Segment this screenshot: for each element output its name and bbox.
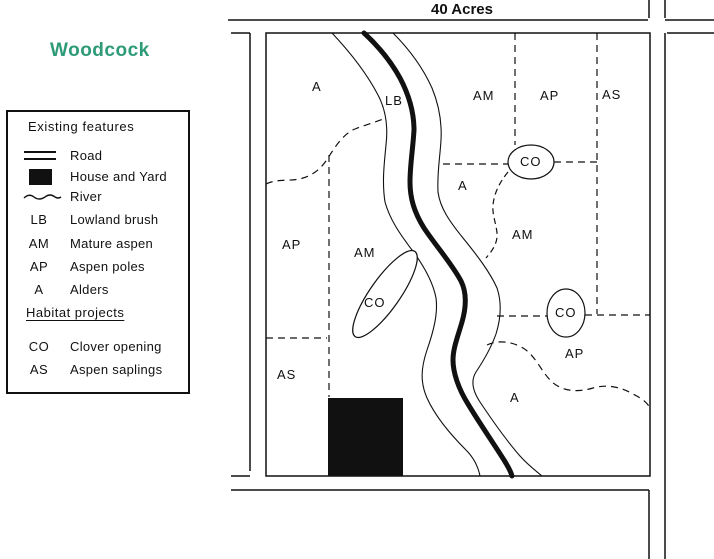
woodcock-habitat-map: Woodcock 40 Acres Existing features Road… bbox=[0, 0, 714, 559]
map-label-aspen-poles-top: AP bbox=[540, 88, 559, 103]
map-label-aspen-poles-right: AP bbox=[565, 346, 584, 361]
map-label-alders-mid: A bbox=[458, 178, 468, 193]
bottom-road-lines bbox=[231, 476, 649, 490]
map-label-alders-topleft: A bbox=[312, 79, 322, 94]
house-and-yard bbox=[328, 398, 403, 476]
map-label-clover-upper: CO bbox=[520, 154, 542, 169]
map-label-lowland-brush: LB bbox=[385, 93, 403, 108]
right-road-lines bbox=[649, 0, 665, 559]
map-label-mature-aspen-left: AM bbox=[354, 245, 376, 260]
map-label-alders-bottom: A bbox=[510, 390, 520, 405]
map-drawing bbox=[0, 0, 714, 559]
boundary-a-ap-dashed bbox=[266, 118, 386, 184]
map-label-mature-aspen-right: AM bbox=[512, 227, 534, 242]
map-label-aspen-poles-left: AP bbox=[282, 237, 301, 252]
map-label-mature-aspen-top: AM bbox=[473, 88, 495, 103]
parcel-border bbox=[266, 33, 650, 476]
map-label-aspen-saplings-left: AS bbox=[277, 367, 296, 382]
map-label-clover-tilted: CO bbox=[364, 295, 386, 310]
map-label-clover-lower: CO bbox=[555, 305, 577, 320]
boundary-a-am-squiggle-dashed bbox=[486, 172, 508, 258]
map-label-aspen-saplings-top: AS bbox=[602, 87, 621, 102]
